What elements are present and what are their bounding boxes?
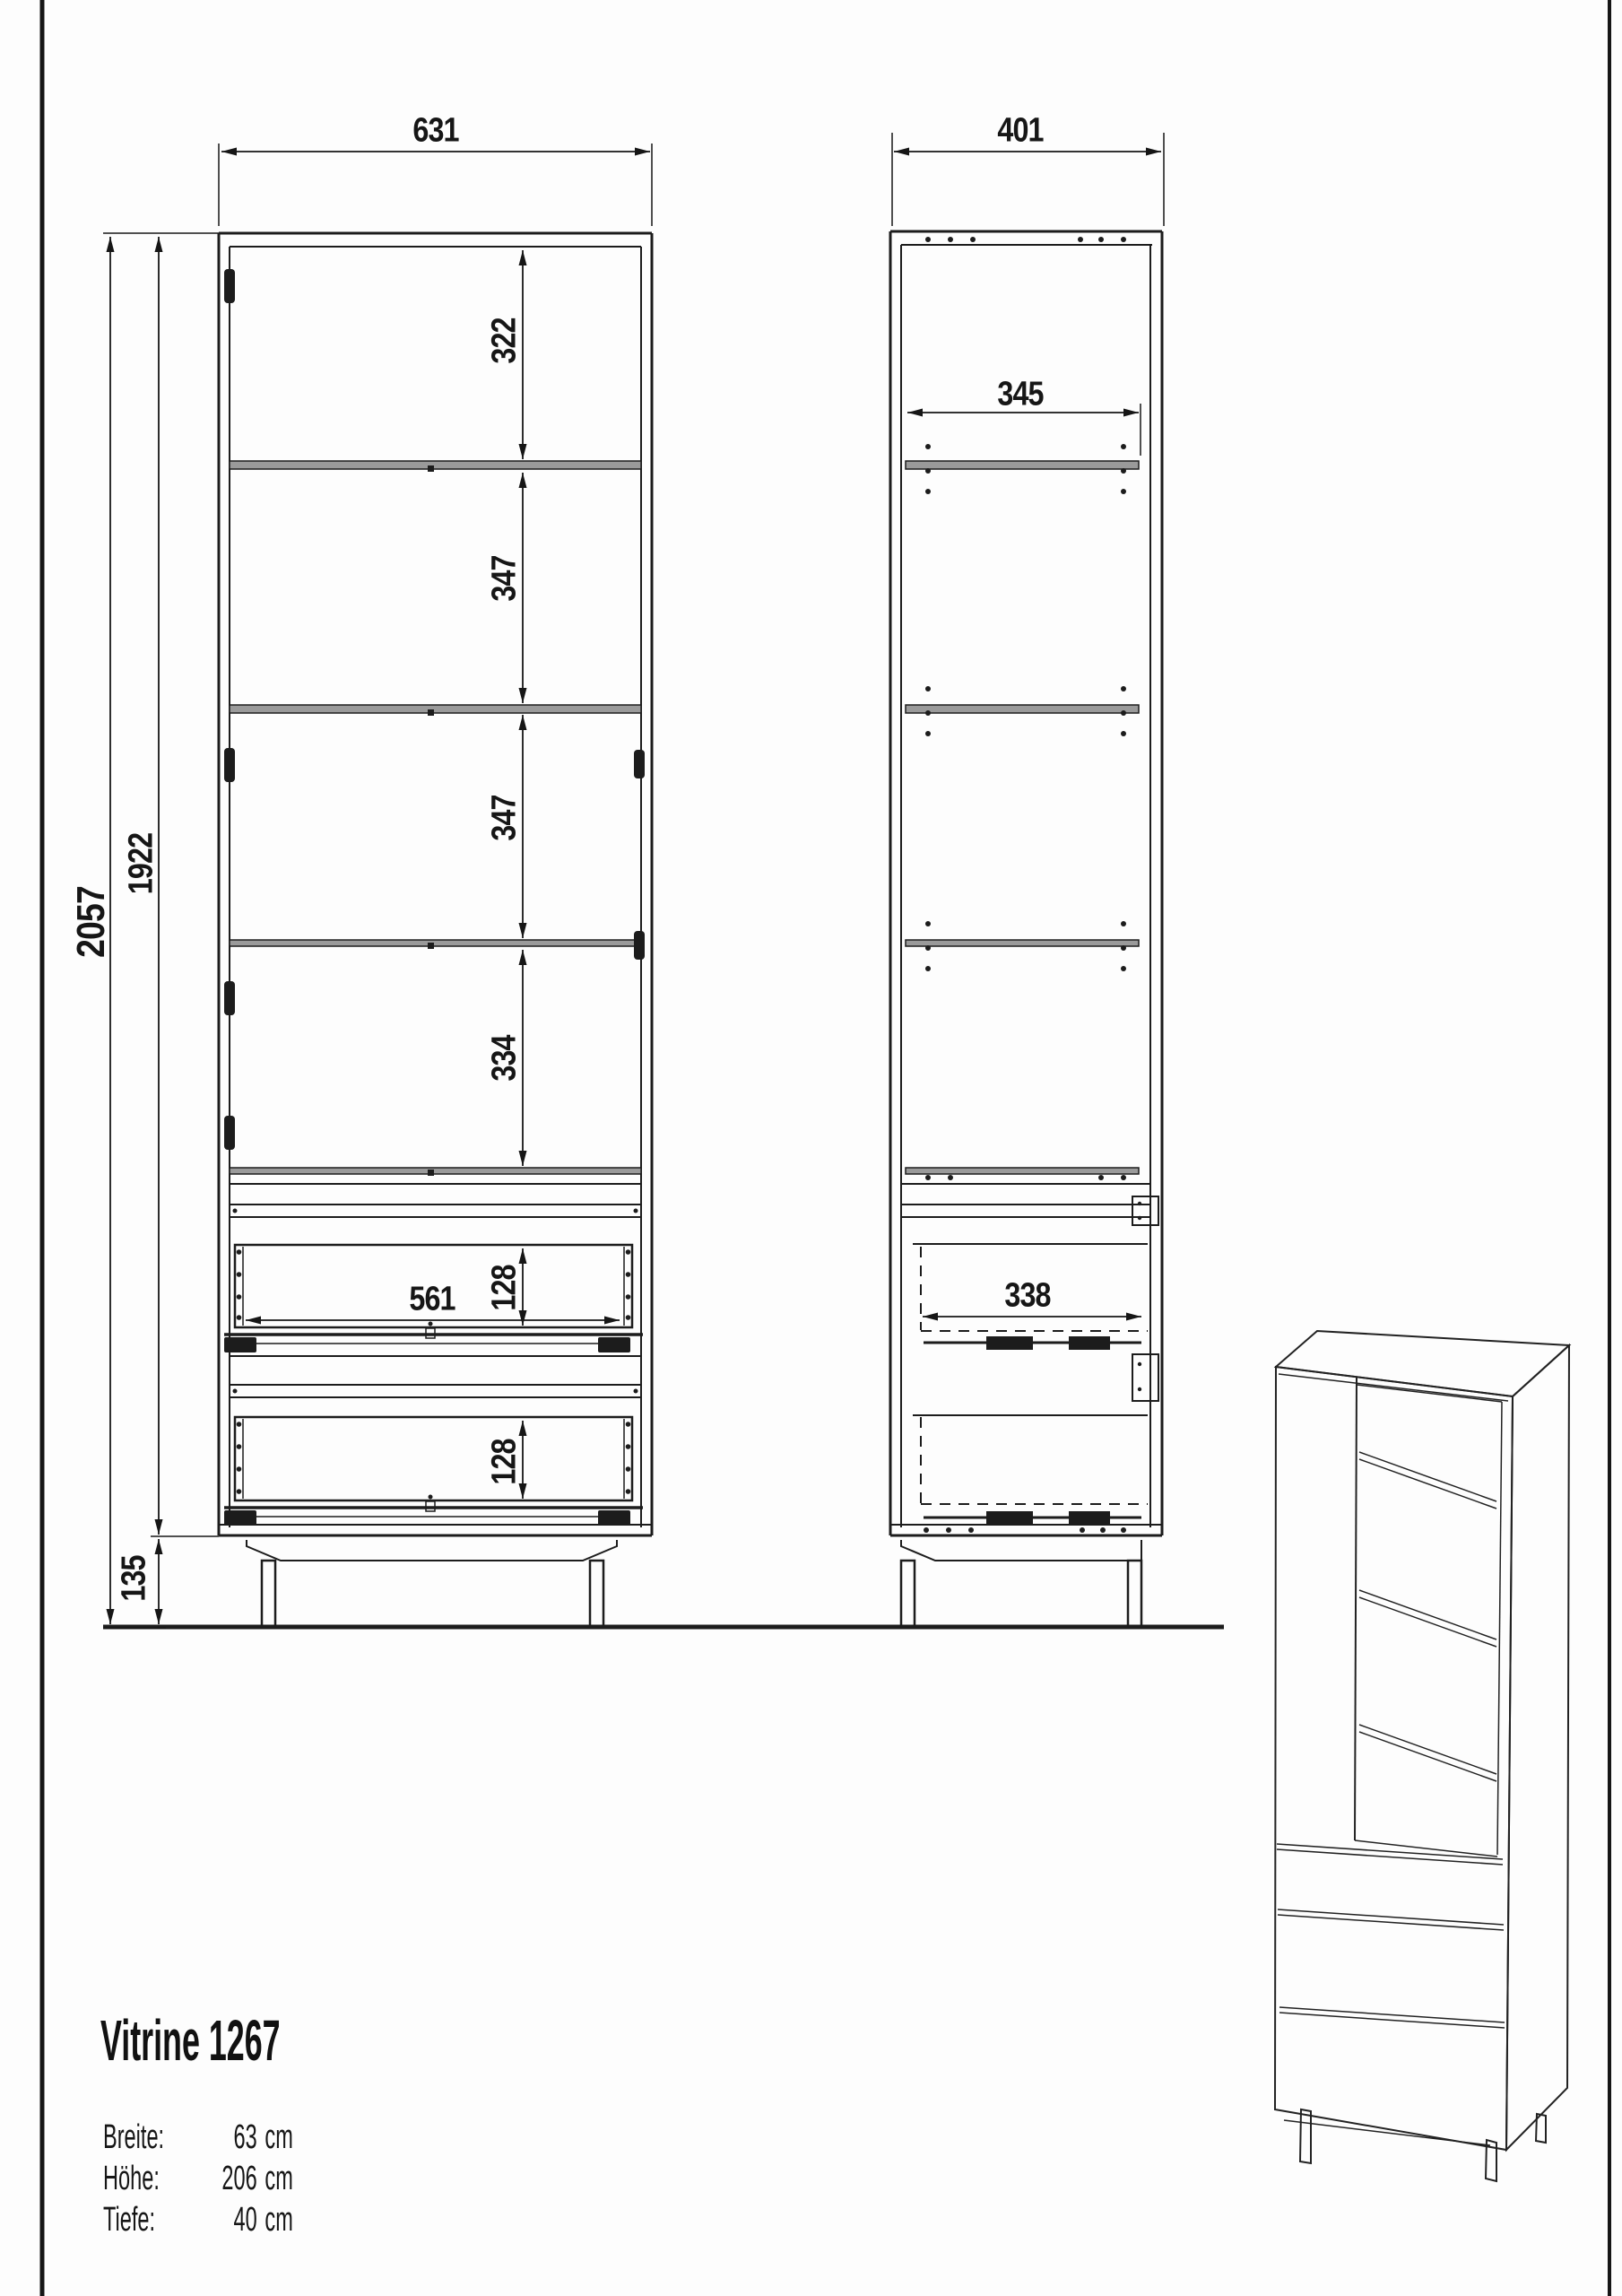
spec-table: Breite: 63 cm Höhe: 206 cm Tiefe: 40 cm [103,2117,293,2240]
side-drawer-2 [913,1415,1148,1525]
iso-drawer-gaps [1277,1844,1505,2028]
dimension-lines [103,133,1164,1628]
shelf-center-pins [428,465,434,1176]
dim-leg-height: 135 [116,1555,154,1601]
iso-shelf-lines [1359,1452,1496,1781]
side-brackets [1132,1196,1158,1401]
side-top-holes [925,237,1126,242]
spec-row-hoehe: Höhe: 206 cm [103,2158,293,2199]
dim-shelf-depth: 345 [997,376,1043,414]
front-plinth [247,1540,617,1561]
front-leg-right [590,1561,603,1627]
technical-drawing-page: 631 401 322 347 347 334 2057 1922 135 12… [0,0,1622,2296]
front-shelves [230,461,641,1174]
dim-section-1: 322 [486,317,525,363]
side-shelves [906,461,1139,1174]
front-drawer-2 [224,1417,643,1526]
dim-section-3: 347 [486,795,525,840]
spec-row-breite: Breite: 63 cm [103,2117,293,2158]
dim-section-2: 347 [486,555,525,601]
product-title: Vitrine 1267 [100,2007,281,2074]
side-pin-holes [925,444,1126,1180]
spec-label: Breite: [103,2117,197,2158]
iso-top-face [1276,1331,1569,1396]
side-leg-front [1128,1561,1141,1627]
iso-leg-back-right [1536,2114,1546,2143]
dim-front-width: 631 [412,112,458,151]
spec-value: 206 [197,2158,256,2199]
side-leg-back [901,1561,915,1627]
iso-leg-front-right [1486,2140,1496,2181]
front-leg-left [262,1561,275,1627]
spec-unit: cm [265,2158,292,2199]
iso-leg-front-left [1300,2109,1311,2163]
spec-value: 40 [197,2199,256,2240]
side-bottom-holes [924,1527,1126,1533]
spec-label: Tiefe: [103,2199,197,2240]
dim-section-4: 334 [486,1035,525,1081]
side-plinth [901,1540,1141,1561]
spec-label: Höhe: [103,2158,197,2199]
spec-unit: cm [265,2117,292,2158]
spec-value: 63 [197,2117,256,2158]
front-view-drawing [219,233,652,1627]
drawing-canvas [0,0,1622,2296]
dim-body-height: 1922 [123,833,161,894]
iso-side-face [1506,1345,1569,2150]
side-view-drawing [890,231,1162,1627]
dim-side-depth: 401 [997,112,1043,151]
spec-unit: cm [265,2199,292,2240]
iso-front-face [1275,1367,1513,2150]
isometric-view-drawing [1275,1331,1569,2181]
spec-row-tiefe: Tiefe: 40 cm [103,2199,293,2240]
dim-drawer2-height: 128 [486,1439,525,1484]
page-border [42,0,1609,2296]
dim-total-height: 2057 [69,886,114,958]
dim-drawer-depth: 338 [1004,1277,1050,1316]
dim-drawer-width: 561 [409,1281,455,1319]
dim-drawer1-height: 128 [486,1265,525,1310]
